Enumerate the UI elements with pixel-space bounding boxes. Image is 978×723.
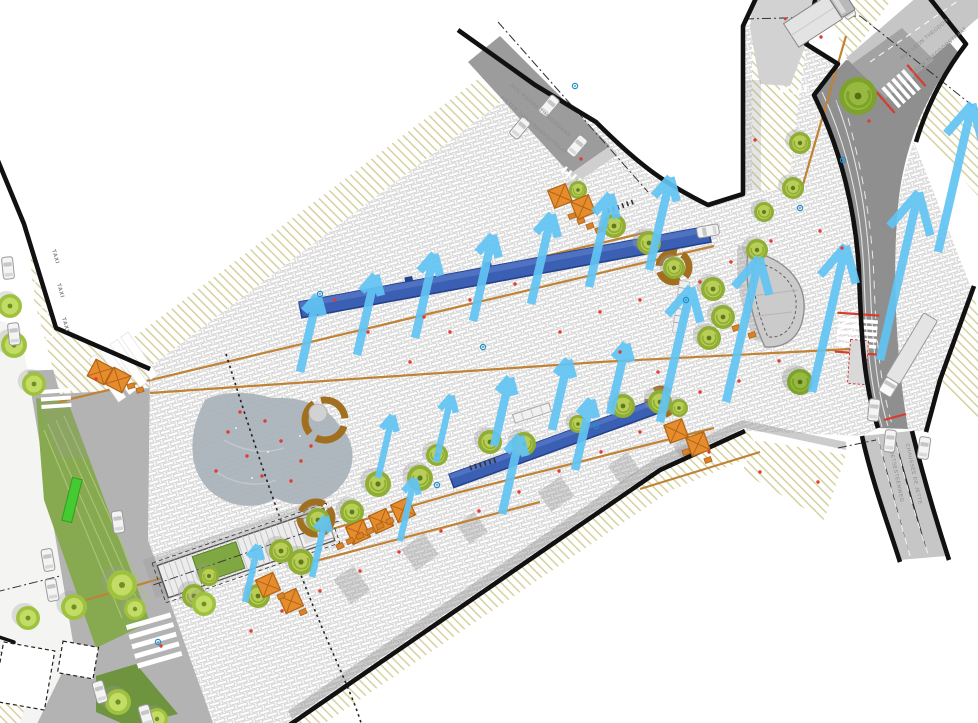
- stone-element: [309, 404, 327, 422]
- red-marker: [477, 509, 480, 512]
- red-marker: [299, 459, 302, 462]
- car-icon: [7, 322, 20, 345]
- red-marker: [159, 644, 162, 647]
- red-marker: [558, 330, 561, 333]
- red-marker: [280, 609, 283, 612]
- red-marker: [579, 157, 582, 160]
- red-marker: [840, 246, 843, 249]
- red-marker: [638, 298, 641, 301]
- red-marker: [309, 444, 312, 447]
- red-marker: [238, 410, 241, 413]
- red-marker: [867, 119, 870, 122]
- red-marker: [333, 298, 336, 301]
- red-marker: [318, 589, 321, 592]
- car-icon: [883, 429, 896, 452]
- red-marker: [397, 550, 400, 553]
- red-marker: [816, 480, 819, 483]
- red-marker: [279, 439, 282, 442]
- red-marker: [599, 450, 602, 453]
- car-icon: [917, 436, 931, 459]
- red-marker: [358, 569, 361, 572]
- red-marker: [707, 450, 710, 453]
- red-marker: [698, 280, 701, 283]
- red-marker: [517, 490, 520, 493]
- red-marker: [818, 229, 821, 232]
- red-marker: [557, 469, 560, 472]
- red-marker: [289, 479, 292, 482]
- red-marker: [598, 310, 601, 313]
- red-marker: [769, 239, 772, 242]
- red-marker: [638, 430, 641, 433]
- red-marker: [753, 138, 756, 141]
- red-marker: [698, 390, 701, 393]
- red-marker: [214, 469, 217, 472]
- red-marker: [366, 330, 369, 333]
- red-marker: [618, 350, 621, 353]
- red-marker: [468, 298, 471, 301]
- red-marker: [249, 629, 252, 632]
- car-icon: [1, 256, 14, 279]
- red-marker: [758, 470, 761, 473]
- red-marker: [94, 377, 97, 380]
- red-marker: [226, 430, 229, 433]
- red-marker: [448, 330, 451, 333]
- red-marker: [737, 379, 740, 382]
- red-marker: [439, 529, 442, 532]
- red-marker: [245, 454, 248, 457]
- site-plan-page: RUE PIERRE TIMMERMANS PIETER TIMMERMANSS…: [0, 0, 978, 723]
- red-marker: [422, 315, 425, 318]
- red-marker: [777, 359, 780, 362]
- site-plan-drawing: RUE PIERRE TIMMERMANS PIETER TIMMERMANSS…: [0, 0, 978, 723]
- car-icon: [867, 398, 880, 421]
- red-marker: [513, 282, 516, 285]
- red-marker: [408, 360, 411, 363]
- red-marker: [263, 419, 266, 422]
- red-marker: [656, 370, 659, 373]
- car-icon: [111, 510, 125, 533]
- red-marker: [729, 260, 732, 263]
- red-marker: [260, 474, 263, 477]
- red-marker: [819, 35, 822, 38]
